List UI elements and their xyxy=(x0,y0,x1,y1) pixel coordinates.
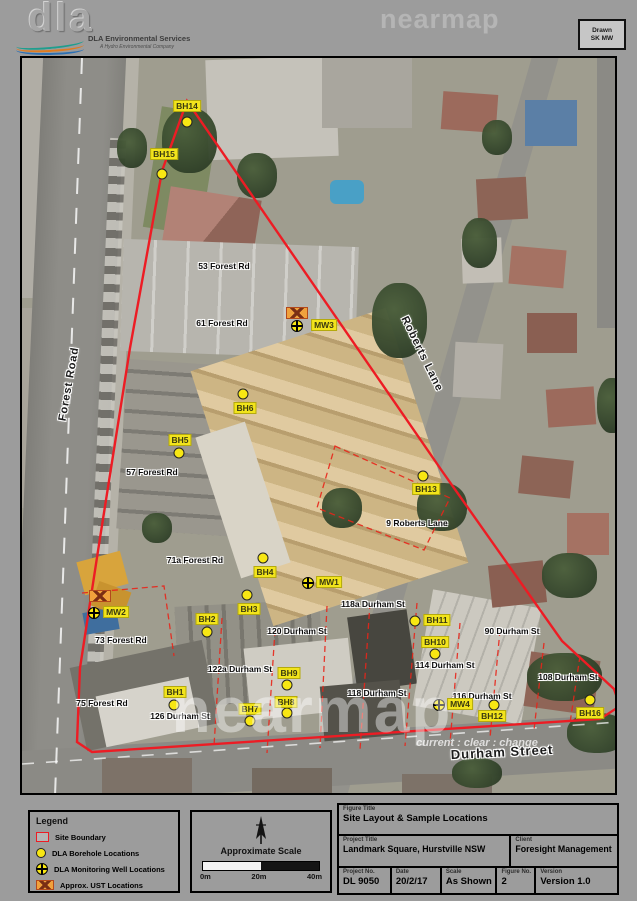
address-label: 61 Forest Rd xyxy=(196,318,248,328)
figure-title-label: Figure Title xyxy=(343,806,613,813)
address-label: 57 Forest Rd xyxy=(126,467,178,477)
borehole-symbol-BH10 xyxy=(430,649,441,660)
address-label: 114 Durham St xyxy=(415,660,474,670)
marker-tag-BH6: BH6 xyxy=(233,402,256,414)
scale-tick: 40m xyxy=(307,872,322,881)
ust-symbol-2 xyxy=(89,590,111,602)
address-label: 118a Durham St xyxy=(341,599,405,609)
marker-tag-BH16: BH16 xyxy=(576,707,604,719)
scale-tick: 0m xyxy=(200,872,211,881)
legend-item-label: DLA Monitoring Well Locations xyxy=(54,865,165,874)
titleblock-cell-figure-no-: Figure No.2 xyxy=(497,868,536,893)
titleblock-cell-scale: ScaleAs Shown xyxy=(442,868,498,893)
stamp-line1: Drawn xyxy=(592,27,612,34)
legend-item-ust: Approx. UST Locations xyxy=(36,877,172,893)
titleblock-cell-value: 20/2/17 xyxy=(396,876,436,887)
client-label: Client xyxy=(515,837,613,844)
marker-tag-MW3: MW3 xyxy=(311,319,337,331)
legend-item-borehole: DLA Borehole Locations xyxy=(36,845,172,861)
site-map: nearmap current : clear : change 53 Fore… xyxy=(20,56,617,795)
scale-tick: 20m xyxy=(251,872,266,881)
titleblock-cell-value: DL 9050 xyxy=(343,876,386,887)
drawing-stamp: Drawn SK MW xyxy=(578,19,626,50)
marker-tag-BH15: BH15 xyxy=(150,148,178,160)
legend-item-site-boundary: Site Boundary xyxy=(36,829,172,845)
marker-tag-BH14: BH14 xyxy=(173,100,201,112)
borehole-symbol-BH3 xyxy=(242,590,253,601)
monitoring-well-symbol-MW3 xyxy=(291,320,303,332)
titleblock-cell-label: Project No. xyxy=(343,869,386,876)
figure-page: { "header": { "logo": { "mark": "dla", "… xyxy=(0,0,637,901)
dla-logo: dla DLA Environmental Services A Hydro E… xyxy=(10,2,230,56)
legend-items: Site BoundaryDLA Borehole LocationsDLA M… xyxy=(36,829,172,893)
address-label: 120 Durham St xyxy=(267,626,327,636)
address-label: 71a Forest Rd xyxy=(167,555,223,565)
scale-box: Approximate Scale 0m20m40m xyxy=(190,810,332,893)
borehole-symbol-BH16 xyxy=(585,695,596,706)
logo-swoosh-icon xyxy=(16,38,86,52)
logo-company-name: DLA Environmental Services xyxy=(88,34,190,43)
marker-tag-BH12: BH12 xyxy=(478,710,506,722)
titleblock-cell-label: Figure No. xyxy=(501,869,530,876)
titleblock-cell-value: 2 xyxy=(501,876,530,887)
marker-tag-BH5: BH5 xyxy=(168,434,191,446)
borehole-symbol-BH13 xyxy=(418,471,429,482)
legend-item-label: Site Boundary xyxy=(55,833,106,842)
map-watermark-big: nearmap xyxy=(172,673,453,747)
titleblock-cell-value: As Shown xyxy=(446,876,492,887)
address-label: 73 Forest Rd xyxy=(95,635,147,645)
logo-tagline: A Hydro Environmental Company xyxy=(100,44,174,50)
stamp-line2: SK MW xyxy=(591,35,613,42)
titleblock-cell-project-no-: Project No.DL 9050 xyxy=(339,868,392,893)
titleblock-cell-date: Date20/2/17 xyxy=(392,868,442,893)
marker-tag-MW2: MW2 xyxy=(103,606,129,618)
borehole-symbol-BH14 xyxy=(182,117,193,128)
borehole-symbol-BH12 xyxy=(489,700,500,711)
legend-item-label: DLA Borehole Locations xyxy=(52,849,139,858)
legend-item-monitoring-well: DLA Monitoring Well Locations xyxy=(36,861,172,877)
page-header: dla DLA Environmental Services A Hydro E… xyxy=(0,0,637,56)
title-block: Figure Title Site Layout & Sample Locati… xyxy=(337,803,619,895)
titleblock-cell-label: Version xyxy=(540,869,613,876)
marker-tag-BH10: BH10 xyxy=(421,636,449,648)
marker-tag-BH2: BH2 xyxy=(195,613,218,625)
marker-tag-BH3: BH3 xyxy=(237,603,260,615)
marker-tag-BH13: BH13 xyxy=(412,483,440,495)
marker-tag-BH4: BH4 xyxy=(253,566,276,578)
borehole-symbol-BH2 xyxy=(202,627,213,638)
address-label: 53 Forest Rd xyxy=(198,261,250,271)
borehole-symbol-BH5 xyxy=(174,448,185,459)
address-label: 75 Forest Rd xyxy=(76,698,128,708)
scale-bar xyxy=(202,861,320,871)
site-boundary-icon xyxy=(36,832,49,842)
monitoring-well-symbol-MW1 xyxy=(302,577,314,589)
marker-tag-BH11: BH11 xyxy=(423,614,450,626)
borehole-symbol-BH15 xyxy=(157,169,168,180)
project-title-value: Landmark Square, Hurstville NSW xyxy=(343,844,505,855)
address-label: 108 Durham St xyxy=(538,672,598,682)
monitoring-well-icon xyxy=(36,863,48,875)
client-value: Foresight Management xyxy=(515,844,613,855)
titleblock-cell-version: VersionVersion 1.0 xyxy=(536,868,617,893)
legend-title: Legend xyxy=(36,816,172,826)
dla-logo-mark: dla xyxy=(28,0,95,41)
scale-ticks: 0m20m40m xyxy=(200,872,322,881)
ust-icon xyxy=(36,880,54,890)
marker-tag-MW1: MW1 xyxy=(316,576,342,588)
legend-item-label: Approx. UST Locations xyxy=(60,881,143,890)
address-label: 90 Durham St xyxy=(485,626,540,636)
map-watermark-small: current : clear : change xyxy=(416,737,538,749)
ust-symbol-1 xyxy=(286,307,308,319)
titleblock-cell-value: Version 1.0 xyxy=(540,876,613,887)
header-watermark: nearmap xyxy=(380,4,500,35)
titleblock-cell-label: Date xyxy=(396,869,436,876)
titleblock-cell-label: Scale xyxy=(446,869,492,876)
borehole-symbol-BH11 xyxy=(410,616,421,627)
legend: Legend Site BoundaryDLA Borehole Locatio… xyxy=(28,810,180,893)
borehole-symbol-BH6 xyxy=(238,389,249,400)
monitoring-well-symbol-MW2 xyxy=(88,607,100,619)
address-label: 9 Roberts Lane xyxy=(386,518,447,528)
scale-title: Approximate Scale xyxy=(198,846,324,856)
figure-title-value: Site Layout & Sample Locations xyxy=(343,813,613,824)
north-arrow-icon xyxy=(250,815,272,845)
project-title-label: Project Title xyxy=(343,837,505,844)
borehole-symbol-BH4 xyxy=(258,553,269,564)
borehole-icon xyxy=(36,848,46,858)
